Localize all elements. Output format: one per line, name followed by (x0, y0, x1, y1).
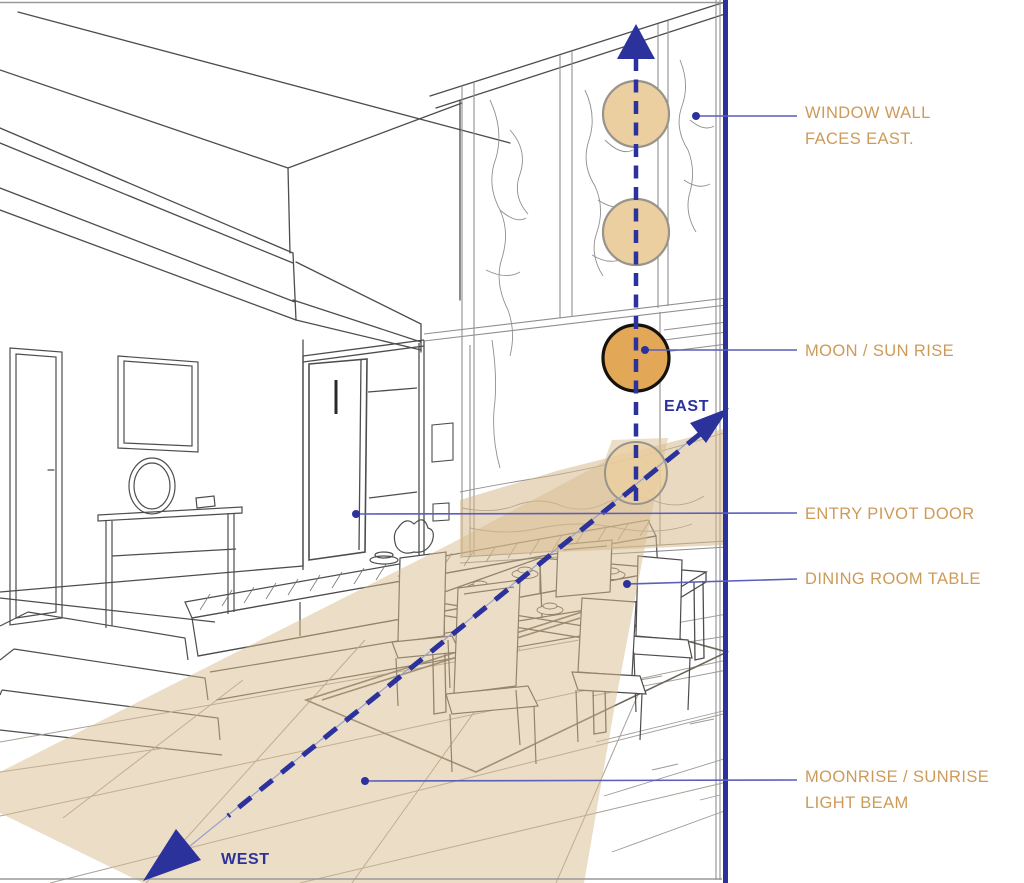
east-label: EAST (664, 398, 709, 416)
drawing-right-border (723, 0, 728, 883)
label-window-wall-faces-east: WINDOW WALL FACES EAST. (805, 100, 1005, 152)
label-moon-sun-rise: MOON / SUN RISE (805, 338, 1015, 364)
label-dining-room-table: DINING ROOM TABLE (805, 566, 1015, 592)
line-art-picture-frame (118, 356, 198, 452)
line-art-pivot-door (303, 340, 424, 570)
line-art-left-door (10, 348, 62, 625)
up-arrow (617, 24, 655, 59)
label-moonrise-sunrise-light-beam: MOONRISE / SUNRISE LIGHT BEAM (805, 764, 1015, 816)
line-art-entry-wall (432, 423, 453, 521)
west-label: WEST (221, 851, 270, 869)
solar-path-diagram: EAST WEST WINDOW WALL FACES EAST. MOON /… (0, 0, 1024, 883)
label-entry-pivot-door: ENTRY PIVOT DOOR (805, 501, 1015, 527)
sunrise-light-beam (0, 438, 668, 883)
line-art-console-table (98, 458, 242, 628)
